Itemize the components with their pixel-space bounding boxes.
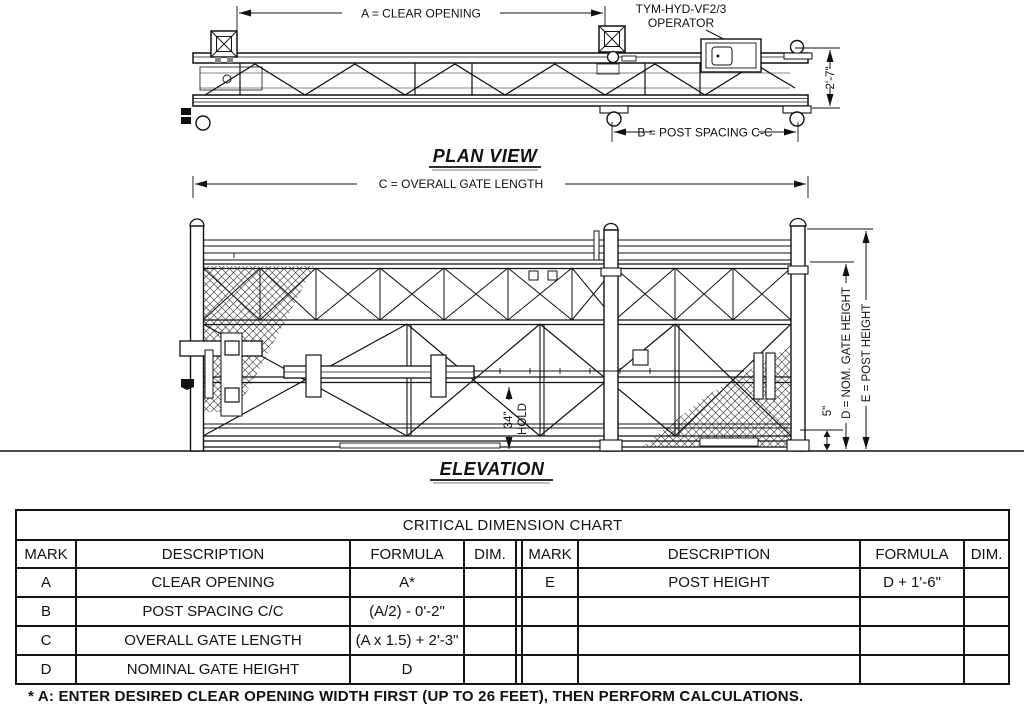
cell-description xyxy=(578,597,860,626)
elevation-view: C = OVERALL GATE LENGTH xyxy=(0,176,1024,483)
cell-dim xyxy=(964,626,1009,655)
chart-title: CRITICAL DIMENSION CHART xyxy=(16,510,1009,540)
cell-mark: A xyxy=(16,568,76,597)
cell-description xyxy=(578,655,860,684)
dim-ground-clearance-label: 5" xyxy=(822,406,834,416)
dim-c-overall-length: C = OVERALL GATE LENGTH xyxy=(193,176,808,198)
elevation-post-middle xyxy=(600,224,622,451)
cell-mark: B xyxy=(16,597,76,626)
cell-description: POST HEIGHT xyxy=(578,568,860,597)
cell-dim xyxy=(964,655,1009,684)
dim-a-label: A = CLEAR OPENING xyxy=(361,7,481,21)
col-header-dim: DIM. xyxy=(464,540,516,568)
cell-description: POST SPACING C/C xyxy=(76,597,350,626)
dim-b-label: B = POST SPACING C-C xyxy=(637,126,773,140)
cell-mark xyxy=(522,597,578,626)
col-header-formula: FORMULA xyxy=(860,540,964,568)
cell-description xyxy=(578,626,860,655)
dim-e-label: E = POST HEIGHT xyxy=(861,304,873,403)
elevation-post-left xyxy=(190,219,204,451)
operator-label-line1: TYM-HYD-VF2/3 xyxy=(636,2,727,16)
dim-d-label: D = NOM. GATE HEIGHT xyxy=(841,287,853,419)
cell-mark xyxy=(522,655,578,684)
drawing-sheet: A = CLEAR OPENING TYM-HYD-VF2/3 OPERATOR xyxy=(0,0,1024,713)
table-row: D NOMINAL GATE HEIGHT D xyxy=(16,655,1009,684)
cell-formula: A* xyxy=(350,568,464,597)
cell-dim xyxy=(964,597,1009,626)
cell-mark: C xyxy=(16,626,76,655)
table-row: A CLEAR OPENING A* E POST HEIGHT D + 1'-… xyxy=(16,568,1009,597)
dim-a-clear-opening: A = CLEAR OPENING xyxy=(237,6,605,50)
cell-dim xyxy=(464,568,516,597)
plan-roller-bottom-left xyxy=(181,108,210,130)
cell-description: CLEAR OPENING xyxy=(76,568,350,597)
dim-d-gate-height: D = NOM. GATE HEIGHT xyxy=(810,262,854,449)
cell-description: OVERALL GATE LENGTH xyxy=(76,626,350,655)
dim-b-post-spacing: B = POST SPACING C-C xyxy=(612,122,798,142)
dim-hold-word: HOLD xyxy=(517,403,529,435)
cell-description: NOMINAL GATE HEIGHT xyxy=(76,655,350,684)
plan-roller-bottom-right xyxy=(783,106,811,126)
cell-formula xyxy=(860,655,964,684)
plan-view-title: PLAN VIEW xyxy=(429,146,541,170)
footnote: * A: ENTER DESIRED CLEAR OPENING WIDTH F… xyxy=(28,688,803,705)
plan-roller-bottom-mid xyxy=(600,106,628,126)
col-header-description: DESCRIPTION xyxy=(578,540,860,568)
col-header-mark: MARK xyxy=(16,540,76,568)
svg-text:PLAN VIEW: PLAN VIEW xyxy=(433,146,539,166)
cell-formula: (A x 1.5) + 2'-3" xyxy=(350,626,464,655)
cell-formula: D + 1'-6" xyxy=(860,568,964,597)
plan-view: A = CLEAR OPENING TYM-HYD-VF2/3 OPERATOR xyxy=(181,2,840,170)
dim-beam-height-label: 2'-7" xyxy=(825,67,837,90)
table-row: B POST SPACING C/C (A/2) - 0'-2" xyxy=(16,597,1009,626)
cell-dim xyxy=(464,626,516,655)
col-header-description: DESCRIPTION xyxy=(76,540,350,568)
cell-dim xyxy=(464,655,516,684)
dim-hold-height: 34" HOLD xyxy=(503,387,529,449)
table-row: C OVERALL GATE LENGTH (A x 1.5) + 2'-3" xyxy=(16,626,1009,655)
col-header-formula: FORMULA xyxy=(350,540,464,568)
cell-dim xyxy=(464,597,516,626)
operator-label-line2: OPERATOR xyxy=(648,16,715,30)
col-header-dim: DIM. xyxy=(964,540,1009,568)
cell-formula xyxy=(860,626,964,655)
cell-mark xyxy=(522,626,578,655)
col-header-mark: MARK xyxy=(522,540,578,568)
critical-dimension-chart: CRITICAL DIMENSION CHART MARK DESCRIPTIO… xyxy=(15,509,1010,685)
dim-hold-value: 34" xyxy=(503,412,515,429)
elevation-title: ELEVATION xyxy=(430,459,553,483)
operator-box xyxy=(701,39,761,72)
dim-c-label: C = OVERALL GATE LENGTH xyxy=(379,177,543,191)
cell-mark: D xyxy=(16,655,76,684)
cell-formula: (A/2) - 0'-2" xyxy=(350,597,464,626)
cell-dim xyxy=(964,568,1009,597)
cell-formula: D xyxy=(350,655,464,684)
svg-text:ELEVATION: ELEVATION xyxy=(440,459,545,479)
cell-mark: E xyxy=(522,568,578,597)
plan-roller-top-right xyxy=(784,41,812,60)
gate-top-rails xyxy=(203,231,791,260)
cell-formula xyxy=(860,597,964,626)
